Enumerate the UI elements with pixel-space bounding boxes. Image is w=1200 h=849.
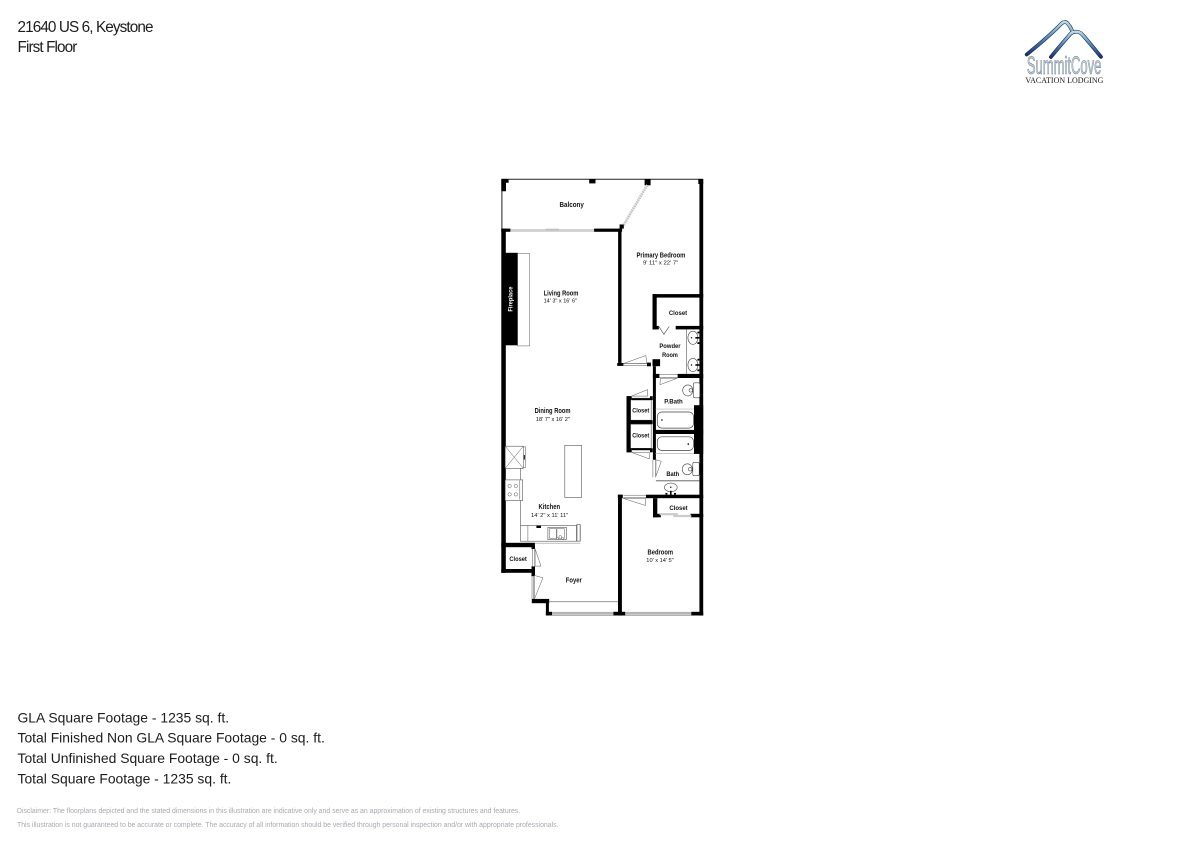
svg-text:Closet: Closet <box>669 505 688 512</box>
svg-text:Disclaimer: The floorplans dep: Disclaimer: The floorplans depicted and … <box>17 808 520 815</box>
svg-text:Room: Room <box>662 352 678 359</box>
svg-text:Fireplace: Fireplace <box>507 286 514 312</box>
svg-text:21640 US 6, Keystone: 21640 US 6, Keystone <box>18 19 153 36</box>
svg-text:Closet: Closet <box>509 556 527 563</box>
svg-text:Kitchen: Kitchen <box>539 504 561 511</box>
svg-text:Living Room: Living Room <box>544 291 579 298</box>
svg-text:Closet: Closet <box>632 433 650 440</box>
svg-text:Powder: Powder <box>659 343 681 350</box>
svg-text:Total Square Footage - 1235 sq: Total Square Footage - 1235 sq. ft. <box>18 771 232 787</box>
svg-text:18' 7" x 16' 2": 18' 7" x 16' 2" <box>536 417 570 423</box>
svg-text:Dining Room: Dining Room <box>535 408 571 415</box>
svg-text:VACATION LODGING: VACATION LODGING <box>1025 75 1103 85</box>
svg-text:Balcony: Balcony <box>560 202 584 209</box>
svg-text:First Floor: First Floor <box>18 39 78 56</box>
svg-text:14' 3" x 16' 6": 14' 3" x 16' 6" <box>544 299 577 305</box>
svg-text:This illustration is not guara: This illustration is not guaranteed to b… <box>17 822 559 829</box>
svg-text:9' 11" x 22' 7": 9' 11" x 22' 7" <box>643 261 678 267</box>
svg-text:Bath: Bath <box>666 471 679 478</box>
svg-text:Foyer: Foyer <box>566 578 582 585</box>
svg-text:P.Bath: P.Bath <box>664 399 683 406</box>
svg-text:10' x 14' 5": 10' x 14' 5" <box>646 558 673 564</box>
svg-text:Closet: Closet <box>669 310 688 317</box>
svg-text:Bedroom: Bedroom <box>648 550 674 557</box>
svg-text:Total Unfinished Square Footag: Total Unfinished Square Footage - 0 sq. … <box>18 750 278 766</box>
svg-text:Total Finished Non GLA Square: Total Finished Non GLA Square Footage - … <box>18 730 325 746</box>
svg-text:14' 2" x 11' 11": 14' 2" x 11' 11" <box>531 513 568 519</box>
svg-text:GLA Square Footage - 1235 sq.: GLA Square Footage - 1235 sq. ft. <box>18 709 230 725</box>
svg-text:Closet: Closet <box>632 407 650 414</box>
svg-text:Primary Bedroom: Primary Bedroom <box>637 253 686 260</box>
